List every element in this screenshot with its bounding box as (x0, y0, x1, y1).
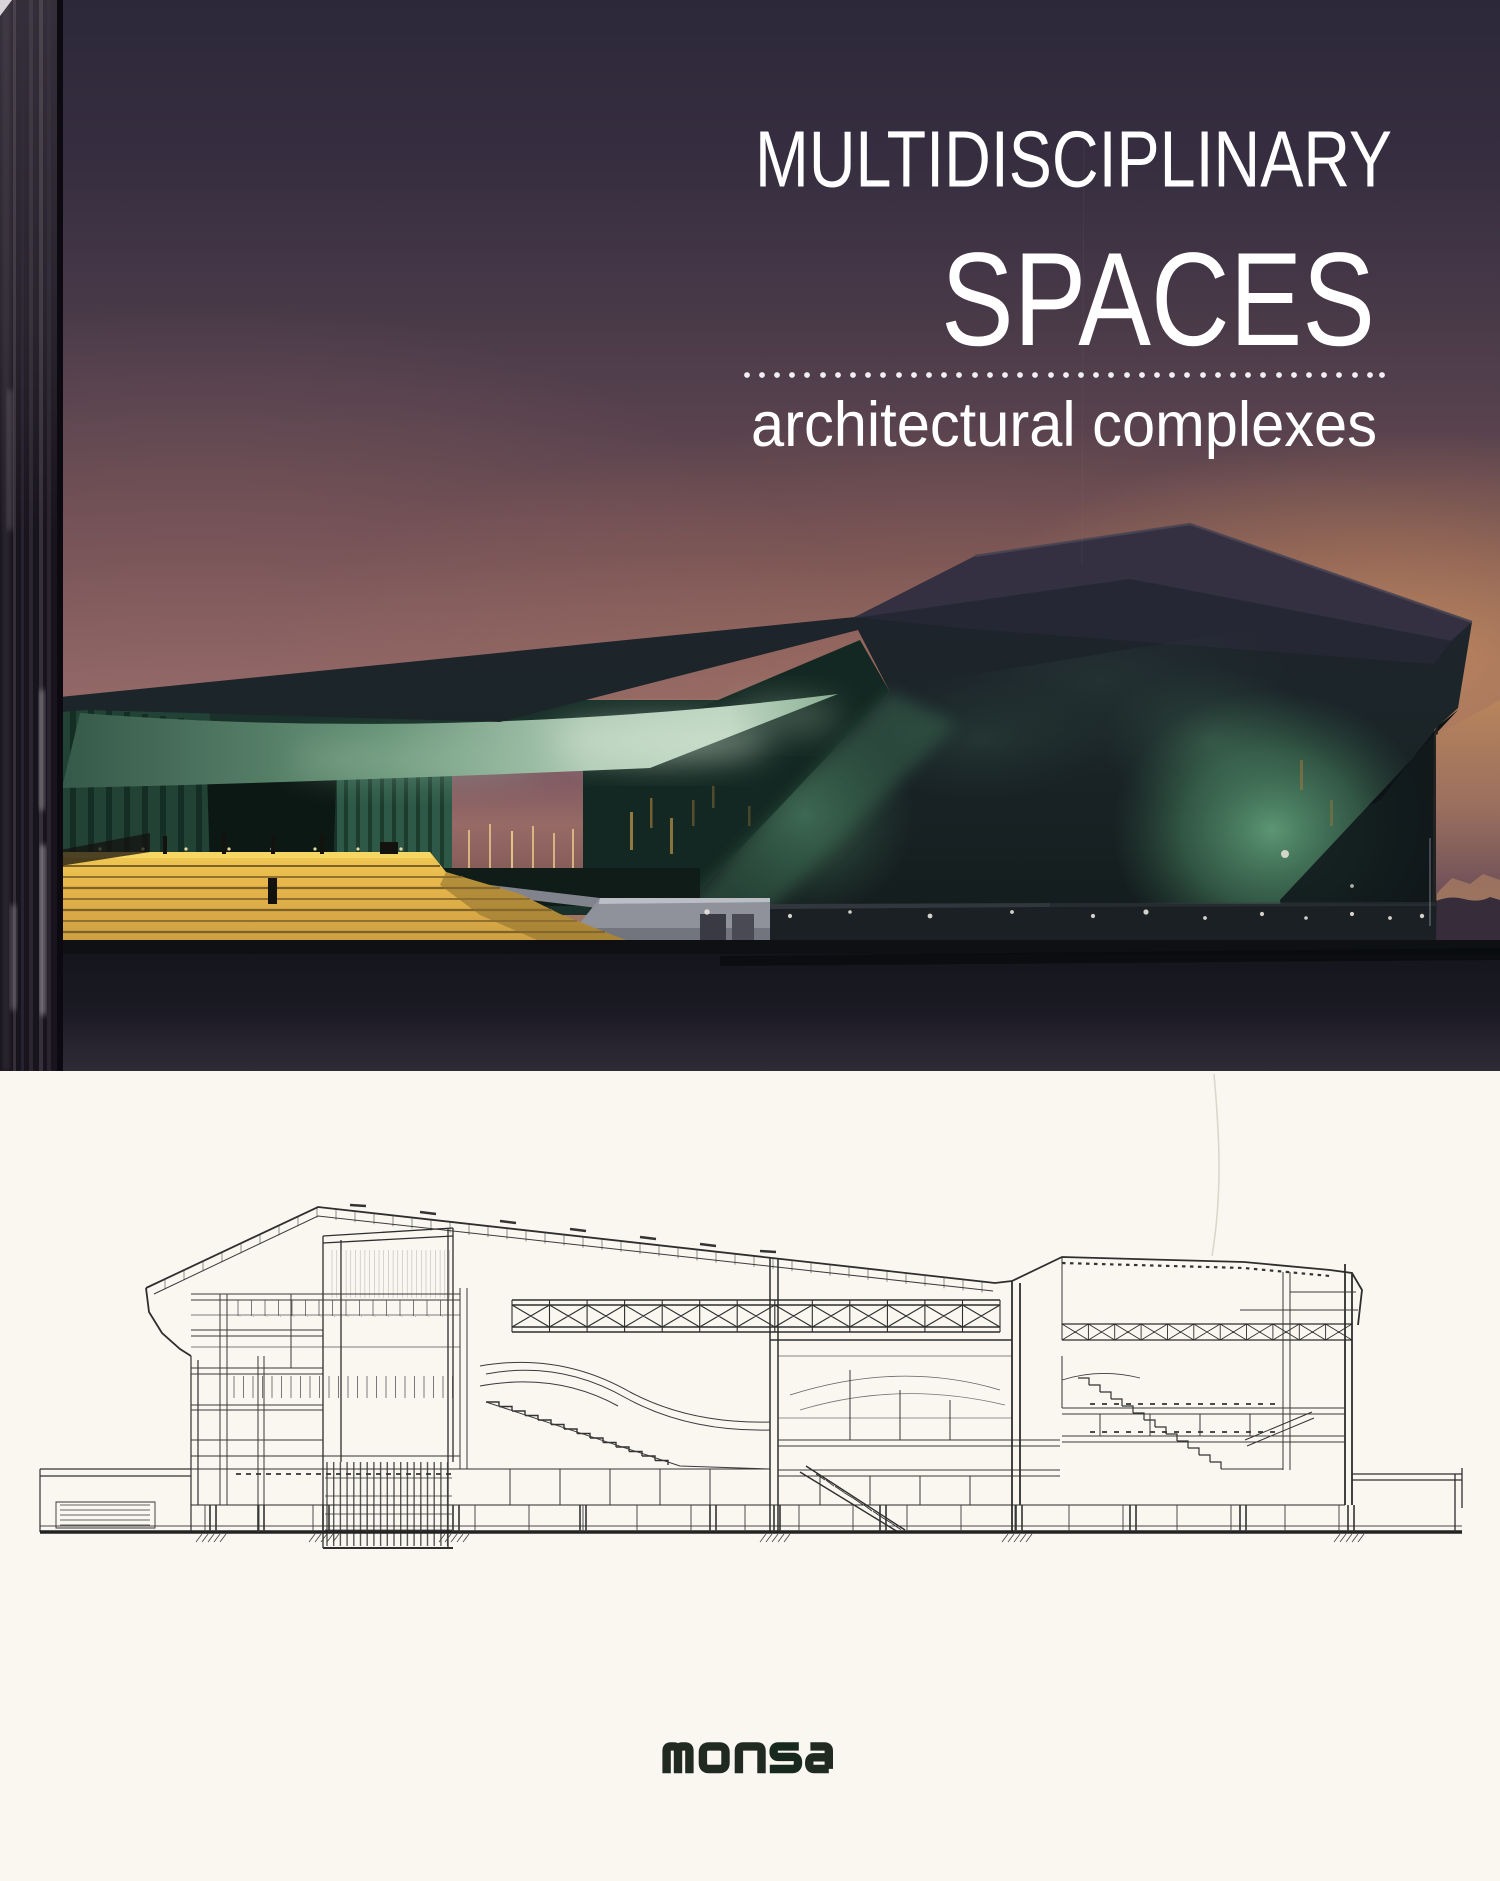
svg-text:architectural complexes: architectural complexes (751, 390, 1377, 460)
svg-text:MULTIDISCIPLINARY: MULTIDISCIPLINARY (755, 115, 1392, 204)
svg-text:SPACES: SPACES (941, 226, 1375, 374)
